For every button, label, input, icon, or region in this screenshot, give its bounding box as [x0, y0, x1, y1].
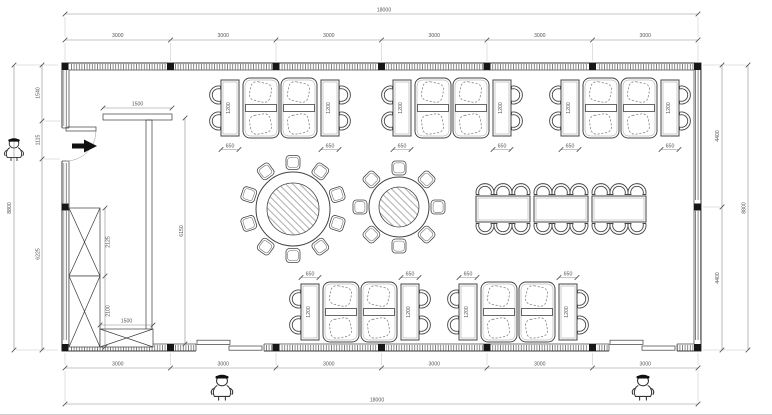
booth-cluster-bottom-1: 650 650 1200 1200	[290, 272, 431, 343]
dim-label: 1200	[566, 102, 572, 114]
dim-label: 3000	[640, 33, 652, 39]
dimension-left: 8800 1540 1115 6225	[7, 63, 44, 353]
dim-label: 1500	[132, 102, 144, 108]
dim-label: 2100	[106, 305, 112, 317]
dim-label: 3000	[112, 362, 124, 368]
dim-label: 650	[226, 144, 235, 150]
dim-label: 1200	[666, 102, 672, 114]
sliding-door	[609, 340, 677, 352]
service-counter: 1500 6150	[101, 102, 188, 347]
dim-label: 1200	[326, 102, 332, 114]
dim-label: 650	[566, 144, 575, 150]
dim-label: 3000	[323, 33, 335, 39]
entry-arrow-icon	[72, 140, 97, 153]
dim-label: 1500	[121, 319, 133, 325]
dim-label: 1200	[464, 306, 470, 318]
dim-label: 1200	[306, 306, 312, 318]
dim-label: 3000	[112, 33, 124, 39]
person-figure-icon	[632, 375, 653, 401]
dim-label: 8800	[7, 202, 13, 214]
booth-cluster-top-3: 650 650 1200 1200	[550, 78, 691, 152]
dim-label: 3000	[534, 33, 546, 39]
round-table-large	[240, 156, 346, 263]
sliding-door	[196, 340, 264, 352]
dimension-top-bays: 3000 3000 3000 3000 3000 3000	[63, 33, 701, 42]
dim-label: 1115	[36, 135, 42, 146]
dim-label: 18000	[377, 8, 392, 14]
dim-label: 6225	[36, 248, 42, 260]
dim-label: 1200	[226, 102, 232, 114]
banquet-table	[476, 196, 530, 222]
dim-label: 650	[666, 144, 675, 150]
booth-cluster-top-1: 650 650 1200 1200	[210, 78, 351, 152]
dim-label: 3000	[640, 362, 652, 368]
x-cabinets: 2125 2100 1500	[69, 206, 155, 350]
dim-label: 3000	[534, 362, 546, 368]
dim-label: 2125	[106, 236, 112, 248]
dimension-top-total: 18000	[63, 8, 701, 17]
floor-plan-sheet: 18000 3000 3000 3000 3000 3000 3000 3000…	[0, 0, 772, 415]
dim-label: 650	[564, 272, 573, 278]
dim-label: 1200	[406, 306, 412, 318]
dim-label: 650	[464, 272, 473, 278]
dim-label: 650	[306, 272, 315, 278]
dim-label: 3000	[218, 33, 230, 39]
banquet-table-group	[476, 184, 646, 235]
dim-label: 650	[398, 144, 407, 150]
dim-label: 1200	[498, 102, 504, 114]
banquet-table	[592, 196, 646, 222]
dim-label: 1200	[398, 102, 404, 114]
dim-label: 3000	[429, 362, 441, 368]
person-figure-icon	[211, 375, 232, 401]
round-table-small	[353, 161, 445, 253]
dim-label: 1540	[36, 87, 42, 99]
entry-door	[61, 127, 97, 161]
booth-cluster-bottom-2: 650 650 1200 1200	[448, 272, 589, 343]
banquet-table	[534, 196, 588, 222]
dim-label: 650	[326, 144, 335, 150]
dim-label: 3000	[218, 362, 230, 368]
dim-label: 4400	[715, 272, 721, 284]
dimension-right: 4400 4400 8800	[715, 63, 750, 353]
dim-label: 3000	[429, 33, 441, 39]
dim-label: 8800	[742, 202, 748, 214]
dim-label: 18000	[370, 398, 385, 404]
booth-cluster-top-2: 650 650 1200 1200	[382, 78, 523, 152]
dim-label: 1200	[564, 306, 570, 318]
dim-label: 4400	[715, 130, 721, 142]
dimension-bottom-total: 18000	[63, 398, 701, 407]
dim-label: 6150	[179, 225, 185, 237]
dim-label: 650	[406, 272, 415, 278]
dim-label: 650	[498, 144, 507, 150]
dim-label: 3000	[323, 362, 335, 368]
